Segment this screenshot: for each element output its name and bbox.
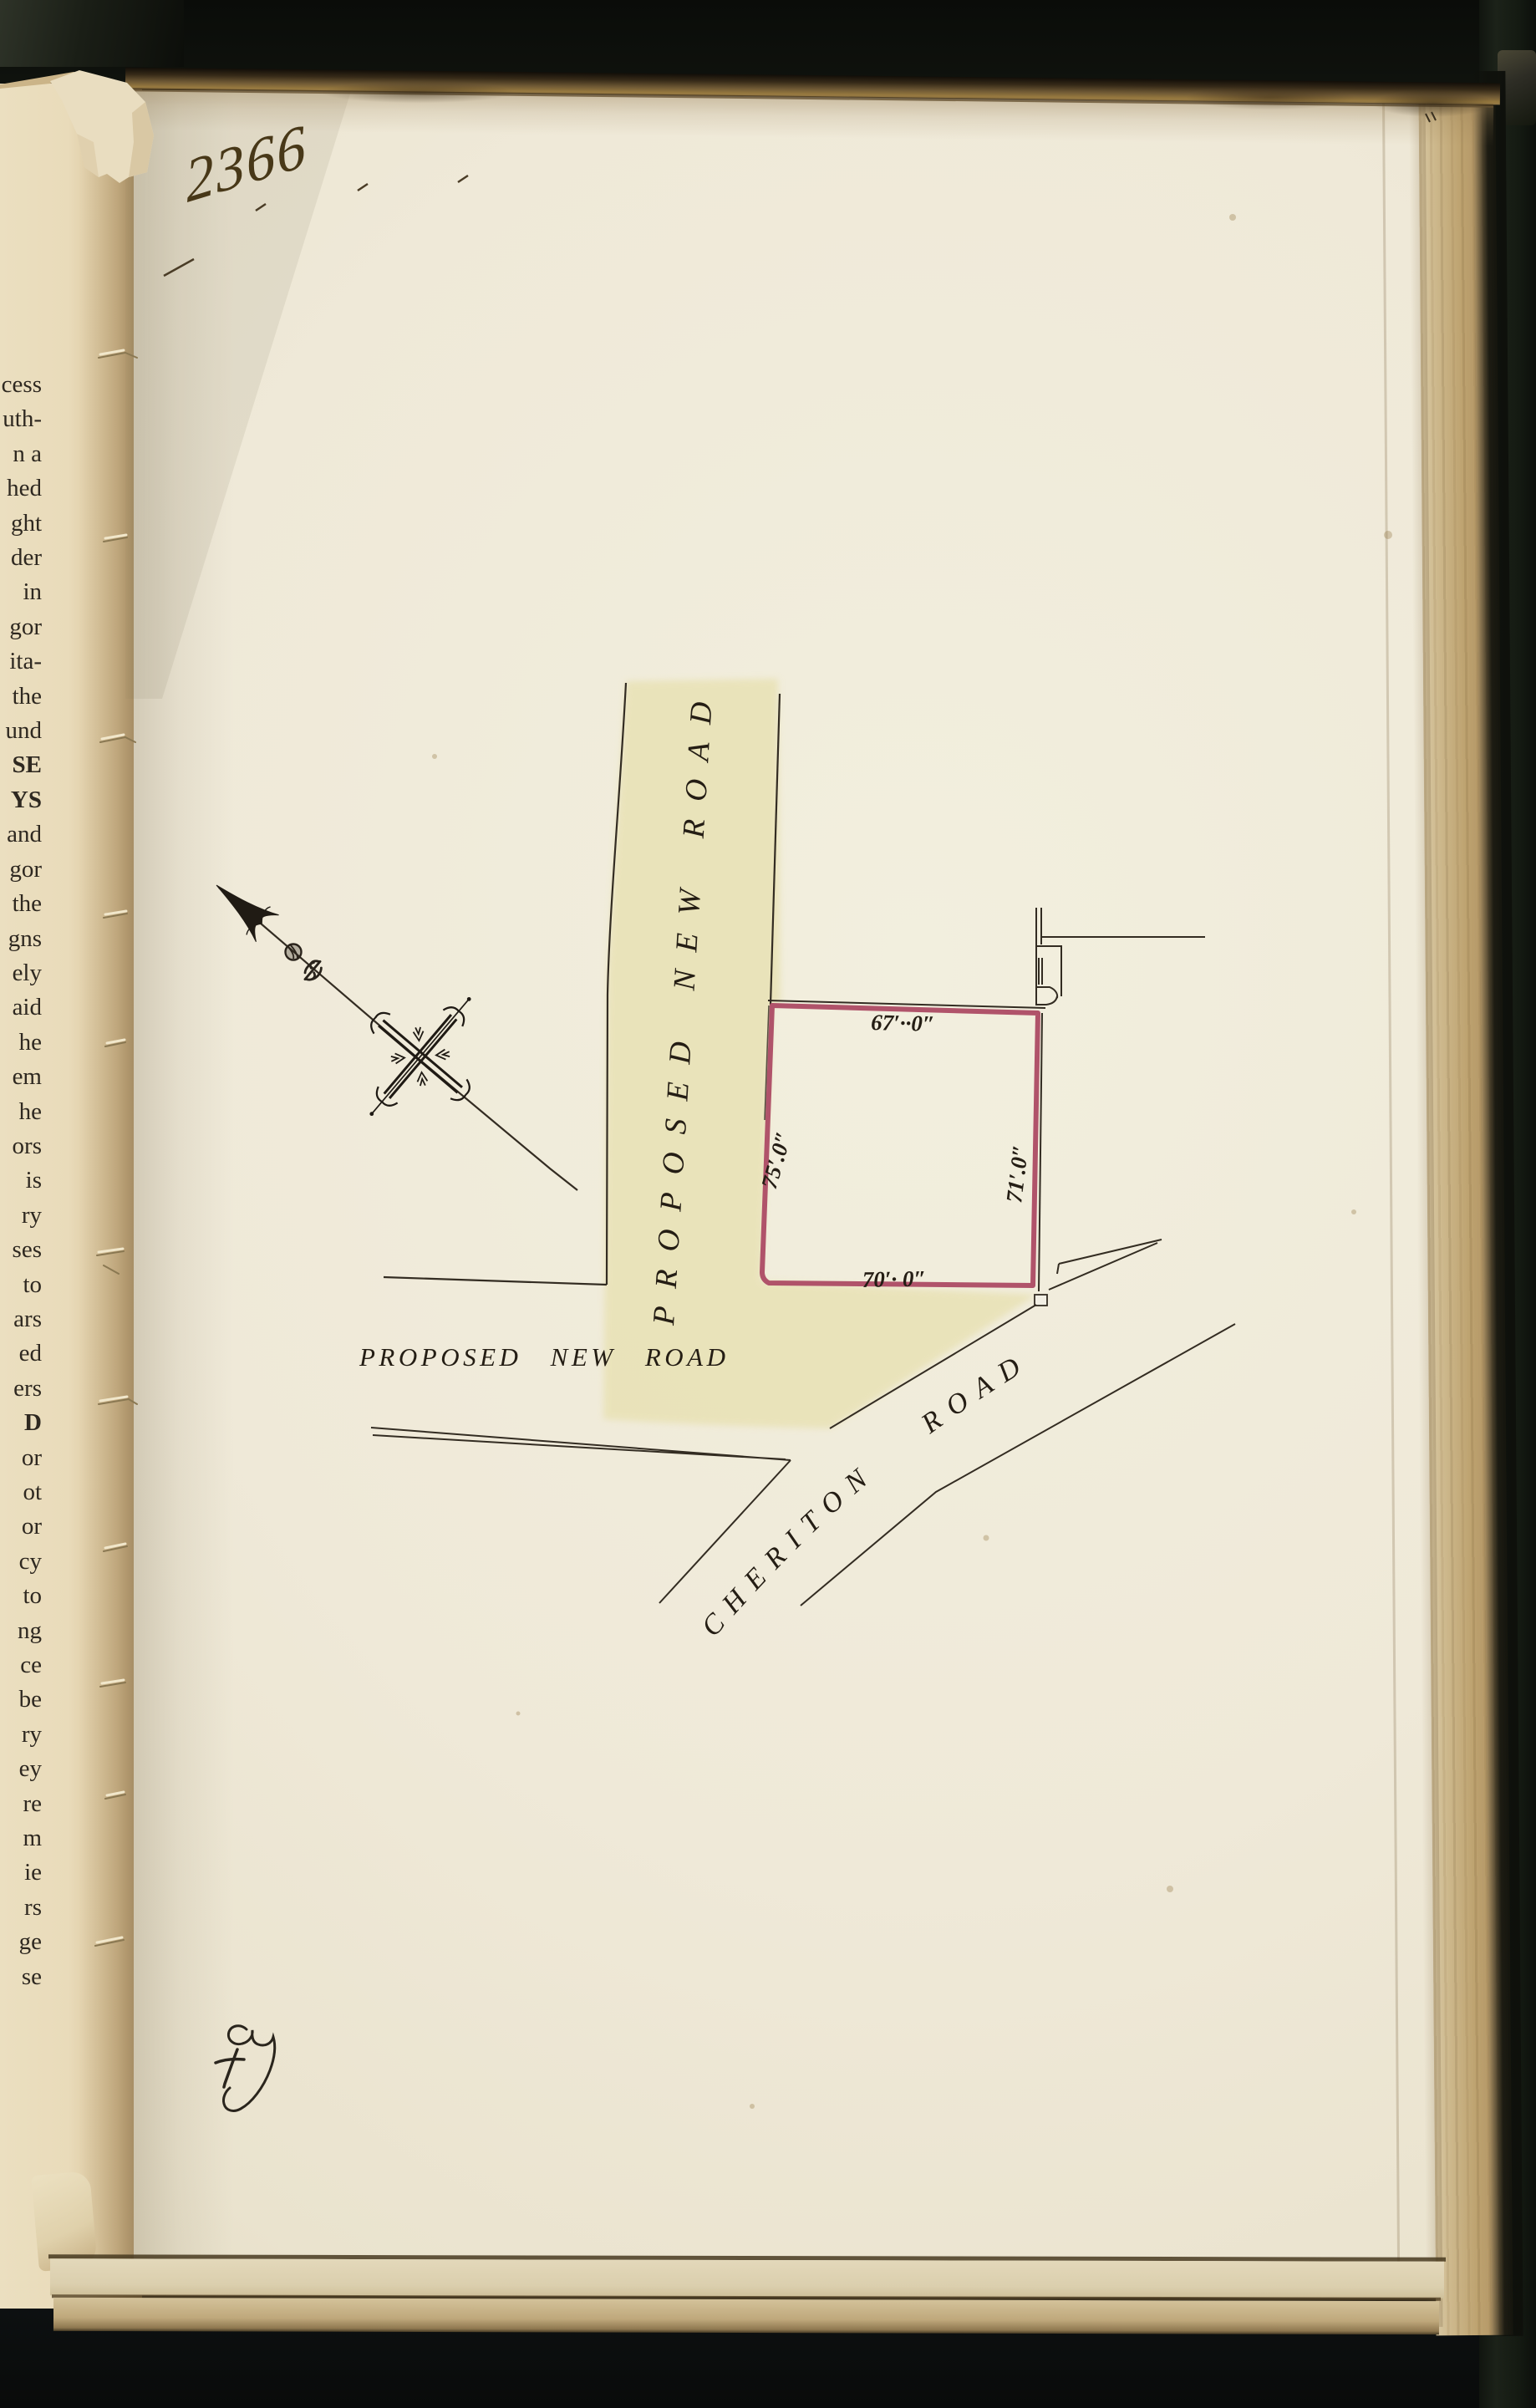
svg-text:67′··0″: 67′··0″ bbox=[871, 1010, 935, 1036]
svg-text:2366: 2366 bbox=[182, 110, 309, 216]
svg-text:71′.0″: 71′.0″ bbox=[1001, 1143, 1033, 1204]
svg-text:PROPOSED NEW ROAD: PROPOSED NEW ROAD bbox=[359, 1342, 730, 1372]
svg-text:70′· 0″: 70′· 0″ bbox=[862, 1266, 927, 1292]
